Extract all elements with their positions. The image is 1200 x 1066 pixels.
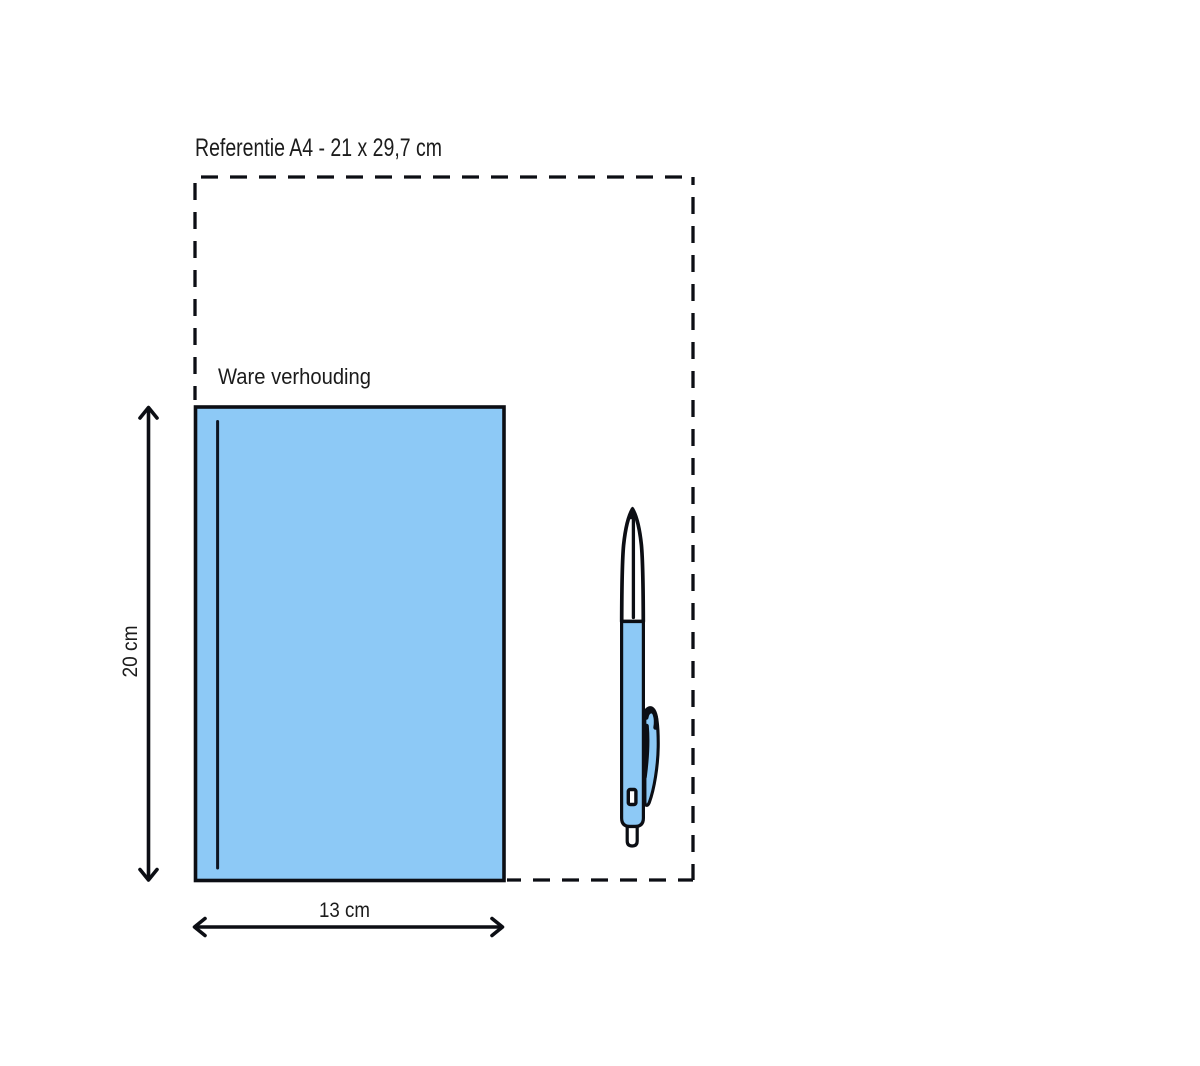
svg-text:20 cm: 20 cm: [118, 626, 142, 678]
svg-text:13 cm: 13 cm: [319, 899, 370, 922]
svg-text:Referentie A4 - 21 x 29,7 cm: Referentie A4 - 21 x 29,7 cm: [195, 134, 442, 162]
svg-text:Ware verhouding: Ware verhouding: [218, 364, 371, 389]
